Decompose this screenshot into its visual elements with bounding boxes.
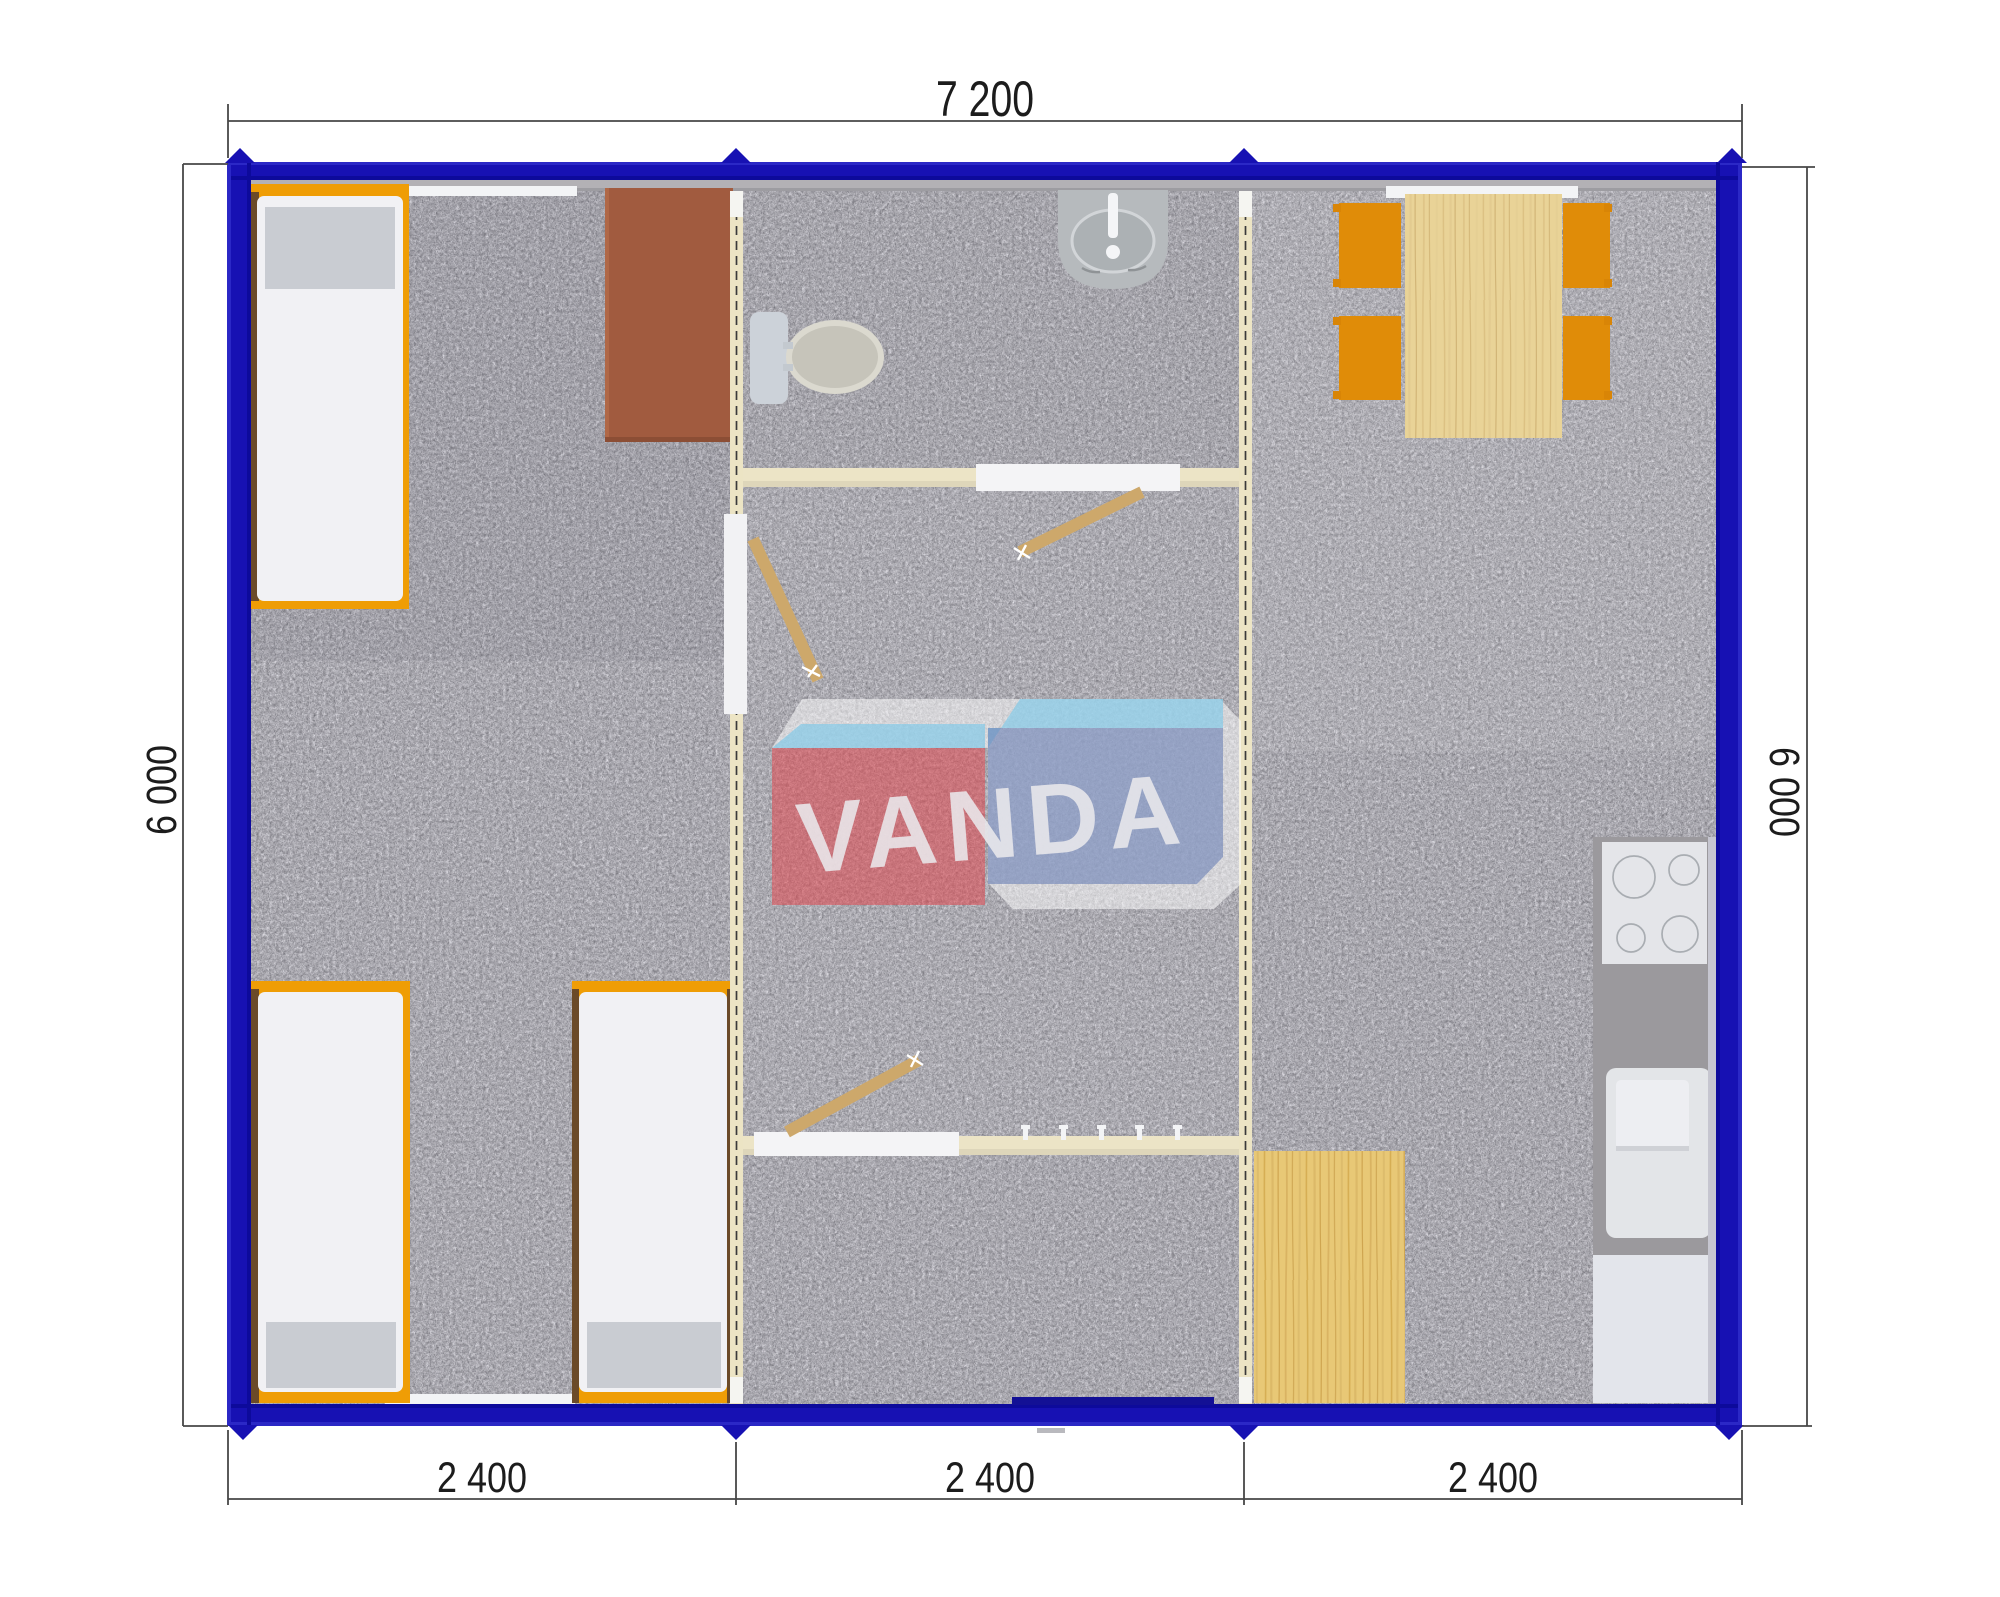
svg-text:2 400: 2 400 [945, 1454, 1035, 1502]
svg-text:6 000: 6 000 [138, 745, 186, 835]
svg-text:2 400: 2 400 [1448, 1454, 1538, 1502]
svg-text:6 000: 6 000 [1760, 747, 1808, 837]
svg-text:7 200: 7 200 [936, 71, 1034, 127]
svg-text:2 400: 2 400 [437, 1454, 527, 1502]
